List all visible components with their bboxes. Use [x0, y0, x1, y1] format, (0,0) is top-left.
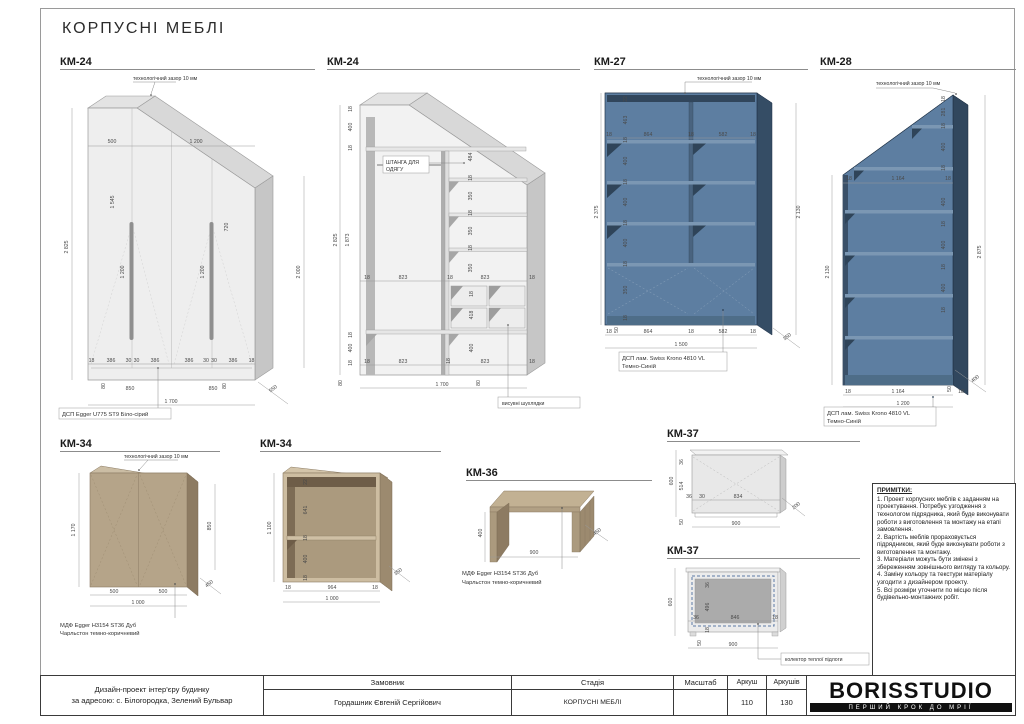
- dim: 550: [268, 384, 279, 394]
- project-cell: Дизайн-проект інтер'єру будинку за адрес…: [41, 676, 263, 715]
- dim: 500: [159, 589, 168, 595]
- leader-label: висувні шухлядки: [502, 401, 545, 407]
- dim: 350: [468, 192, 474, 201]
- dim: 582: [719, 329, 728, 335]
- dim: 2 000: [296, 265, 302, 278]
- stage-cell: Стадія КОРПУСНІ МЕБЛІ: [511, 676, 673, 715]
- dim: 350: [782, 332, 793, 342]
- drawing-code-km24b: КМ-24: [327, 56, 580, 70]
- dim: 850: [207, 522, 213, 531]
- dim: 18: [364, 275, 370, 281]
- notes-box: ПРИМІТКИ: 1. Проект корпусних меблів є з…: [872, 483, 1016, 676]
- leader-label: технологічний зазор 10 мм: [697, 75, 762, 82]
- leader-label: технологічний зазор 10 мм: [876, 80, 941, 87]
- dim: 30: [126, 358, 132, 364]
- dim: 500: [108, 139, 117, 145]
- dim: 1 164: [892, 176, 905, 182]
- dim: 30: [134, 358, 140, 364]
- dim: 500: [110, 589, 119, 595]
- dim: 80: [476, 380, 482, 386]
- material-label: МДФ Egger H3154 ST36 Дуб: [60, 623, 137, 629]
- customer-cell: Замовник Гордашник Євгеній Сергійович: [263, 676, 511, 715]
- dim: 582: [719, 132, 728, 138]
- dim: 18: [529, 359, 535, 365]
- figure-km34a: технологічний зазор 10 мм 1 170 850 450 …: [58, 438, 258, 656]
- sheet-cell: Аркуш 110: [727, 676, 766, 715]
- dim: 386: [185, 358, 194, 364]
- material-label: Чарльстон темно-коричневий: [462, 579, 541, 586]
- drawing-code-km28: КМ-28: [820, 56, 1016, 70]
- dim: 1 200: [190, 139, 203, 145]
- dim: 2 825: [333, 233, 339, 246]
- dim: 18: [688, 132, 694, 138]
- dim: 418: [469, 311, 475, 320]
- dim: 18: [750, 329, 756, 335]
- cabinet-shape: [605, 93, 772, 335]
- dim: 30: [211, 358, 217, 364]
- dim: 964: [328, 585, 337, 591]
- dim: 850: [209, 386, 218, 392]
- dim: 18: [846, 176, 852, 182]
- cabinet-shape: [360, 93, 545, 375]
- sheets-value: 130: [767, 690, 806, 715]
- dim: 50: [697, 640, 703, 646]
- dim: 18: [469, 291, 475, 297]
- dim: 18: [447, 275, 453, 281]
- dim: 18: [772, 615, 778, 621]
- dim: 386: [107, 358, 116, 364]
- note-item: 4. Заміну кольору та текстури матеріалу …: [877, 571, 1011, 586]
- dim: 18: [468, 245, 474, 251]
- dim: 1 170: [71, 523, 77, 536]
- sheet-value: 110: [728, 690, 766, 715]
- dim: 823: [399, 359, 408, 365]
- scale-label: Масштаб: [674, 676, 727, 690]
- dim: 18: [623, 261, 629, 267]
- dim: 18: [945, 176, 951, 182]
- material-label: Темно-Синій: [622, 363, 656, 370]
- brand-logo: BORISSTUDIO: [810, 680, 1012, 702]
- dim: 18: [606, 329, 612, 335]
- cabinet-shape: [283, 467, 392, 591]
- dim: 1 700: [165, 399, 178, 405]
- drawing-sheet: КОРПУСНІ МЕБЛІ КМ-24: [0, 0, 1024, 724]
- logo-cell: BORISSTUDIO ПЕРШИЙ КРОК ДО МРІЇ: [806, 676, 1015, 715]
- dim: 400: [941, 198, 947, 207]
- dim: 200: [791, 501, 802, 511]
- project-line2: за адресою: с. Білогородка, Зелений Буль…: [71, 696, 232, 706]
- dim: 80: [222, 383, 228, 389]
- dim: 30: [699, 494, 705, 500]
- figure-km36: 400 900 450 МДФ Egger H3154 ST36 Дуб Чар…: [460, 465, 655, 600]
- dim: 900: [732, 521, 741, 527]
- dim: 484: [468, 153, 474, 162]
- note-item: 1. Проект корпусних меблів є заданням на…: [877, 496, 1011, 534]
- figure-km28: технологічний зазор 10 мм 18 281 18 400 …: [818, 72, 1016, 457]
- bench-shape: [490, 491, 594, 562]
- dim: 18: [845, 389, 851, 395]
- dim: 1 200: [120, 265, 126, 278]
- dim: 400: [478, 529, 484, 538]
- stage-label: Стадія: [512, 676, 673, 690]
- dim: 18: [372, 585, 378, 591]
- dim: 50: [614, 327, 620, 333]
- dim: 18: [468, 210, 474, 216]
- dim: 386: [151, 358, 160, 364]
- dim: 350: [623, 286, 629, 295]
- dim: 2 130: [796, 205, 802, 218]
- dim: 18: [623, 220, 629, 226]
- dim: 18: [348, 106, 354, 112]
- dim: 18: [303, 575, 309, 581]
- dim: 50: [679, 519, 685, 525]
- dim: 514: [679, 482, 685, 491]
- dim: 400: [623, 157, 629, 166]
- leader-label: ОДЯГУ: [386, 167, 404, 173]
- figure-km37b: 600 36 496 36 846 18 18 50 900 колектор …: [665, 545, 870, 673]
- dim: 463: [623, 116, 629, 125]
- sheets-label: Аркушів: [767, 676, 806, 690]
- dim: 600: [668, 598, 674, 607]
- dim: 36: [686, 494, 692, 500]
- dim: 641: [303, 506, 309, 515]
- dim: 600: [669, 477, 675, 486]
- dim: 22: [623, 96, 629, 102]
- material-label: ДСП лам. Swiss Krono 4810 VL: [622, 356, 706, 362]
- figure-km37a: 600 36 514 50 36 30 834 900 200: [665, 428, 862, 542]
- scale-cell: Масштаб: [673, 676, 727, 715]
- dim: 2 875: [977, 245, 983, 258]
- note-item: 5. Всі розміри уточнити по місцю після б…: [877, 587, 1011, 602]
- notes-heading: ПРИМІТКИ:: [877, 487, 1011, 495]
- dim: 18: [303, 535, 309, 541]
- dim: 400: [970, 374, 981, 384]
- dim: 18: [348, 360, 354, 366]
- dim: 1 545: [110, 195, 116, 208]
- project-line1: Дизайн-проект інтер'єру будинку: [95, 685, 210, 695]
- dim: 400: [469, 344, 475, 353]
- dim: 1 500: [675, 342, 688, 348]
- dim: 1 164: [892, 389, 905, 395]
- material-label: Чарльстон темно-коричневий: [60, 630, 139, 637]
- figure-km34b: 1 100 22 641 18 400 18 18 964 18 1 000 3…: [258, 438, 443, 633]
- dim: 400: [348, 123, 354, 132]
- sheets-cell: Аркушів 130: [766, 676, 806, 715]
- dim: 350: [468, 264, 474, 273]
- dim: 400: [303, 555, 309, 564]
- dim: 18: [941, 123, 947, 129]
- dim: 281: [941, 108, 947, 117]
- dim: 18: [364, 359, 370, 365]
- dim: 36: [679, 459, 685, 465]
- dim: 400: [941, 143, 947, 152]
- figure-km24a: технологічний зазор 10 мм 500 1 200 1 54…: [58, 72, 316, 420]
- dim: 18: [249, 358, 255, 364]
- dim: 18: [941, 264, 947, 270]
- dim: 18: [468, 175, 474, 181]
- dim: 350: [468, 227, 474, 236]
- dim: 18: [941, 307, 947, 313]
- dim: 18: [688, 329, 694, 335]
- dim: 18: [623, 137, 629, 143]
- sheet-label: Аркуш: [728, 676, 766, 690]
- dim: 2 130: [825, 265, 831, 278]
- figure-km24b: 18 400 18 2 825 1 873 484 18 350 18 350 …: [325, 72, 580, 422]
- dim: 18: [958, 389, 964, 395]
- dim: 400: [623, 239, 629, 248]
- dim: 18: [941, 96, 947, 102]
- dim: 18: [941, 221, 947, 227]
- dim: 496: [705, 603, 711, 612]
- material-label: ДСП лам. Swiss Krono 4810 VL: [827, 411, 911, 417]
- dim: 18: [750, 132, 756, 138]
- dim: 18: [348, 145, 354, 151]
- cabinet-shape: [843, 95, 968, 395]
- dim: 1 000: [132, 600, 145, 606]
- dim: 1 200: [897, 401, 910, 407]
- dim: 1 873: [345, 233, 351, 246]
- dim: 864: [644, 329, 653, 335]
- leader-label: ШТАНГА ДЛЯ: [386, 160, 419, 166]
- material-label: Темно-Синій: [827, 418, 861, 425]
- drawing-code-km24a: КМ-24: [60, 56, 315, 70]
- dim: 22: [303, 479, 309, 485]
- customer-name: Гордашник Євгеній Сергійович: [264, 690, 511, 715]
- material-label: МДФ Egger H3154 ST36 Дуб: [462, 571, 539, 577]
- note-item: 3. Матеріали можуть бути змінені з збере…: [877, 556, 1011, 571]
- dim: 400: [623, 198, 629, 207]
- dim: 18: [89, 358, 95, 364]
- material-label: ДСП Egger U775 ST9 Біло-сірий: [62, 411, 148, 418]
- dim: 400: [941, 241, 947, 250]
- page-title: КОРПУСНІ МЕБЛІ: [62, 20, 225, 38]
- dim: 864: [644, 132, 653, 138]
- dim: 80: [101, 383, 107, 389]
- dim: 36: [705, 582, 711, 588]
- customer-label: Замовник: [264, 676, 511, 690]
- dim: 18: [623, 179, 629, 185]
- dim: 1 200: [200, 265, 206, 278]
- dim: 386: [229, 358, 238, 364]
- dim: 18: [529, 275, 535, 281]
- dim: 18: [446, 358, 452, 364]
- dim: 823: [399, 275, 408, 281]
- dim: 18: [623, 315, 629, 321]
- dim: 850: [126, 386, 135, 392]
- dim: 823: [481, 275, 490, 281]
- dim: 18: [606, 132, 612, 138]
- cabinet-shape: [686, 568, 786, 636]
- title-block: Дизайн-проект інтер'єру будинку за адрес…: [40, 675, 1016, 716]
- dim: 18: [285, 585, 291, 591]
- note-item: 2. Вартість меблів прораховується підряд…: [877, 534, 1011, 557]
- dim: 2 375: [594, 205, 600, 218]
- dim: 50: [947, 386, 953, 392]
- leader-label: технологічний зазор 10 мм: [133, 75, 198, 82]
- dim: 1 100: [267, 521, 273, 534]
- dim: 80: [338, 380, 344, 386]
- dim: 900: [530, 550, 539, 556]
- dim: 400: [941, 284, 947, 293]
- dim: 834: [734, 494, 743, 500]
- dim: 18: [348, 332, 354, 338]
- dim: 823: [481, 359, 490, 365]
- leader-label: технологічний зазор 10 мм: [124, 453, 189, 460]
- dim: 36: [693, 615, 699, 621]
- dim: 30: [203, 358, 209, 364]
- scale-value: [674, 690, 727, 715]
- dim: 900: [729, 642, 738, 648]
- leader-label: колектор теплої підлоги: [785, 657, 843, 663]
- dim: 720: [224, 223, 230, 232]
- dim: 1 000: [326, 596, 339, 602]
- brand-tagline: ПЕРШИЙ КРОК ДО МРІЇ: [810, 703, 1012, 712]
- cabinet-shape: [690, 450, 788, 517]
- dim: 400: [348, 344, 354, 353]
- dim: 18: [941, 165, 947, 171]
- dim: 18: [705, 627, 711, 633]
- dim: 2 825: [64, 240, 70, 253]
- drawing-code-km27: КМ-27: [594, 56, 808, 70]
- stage-value: КОРПУСНІ МЕБЛІ: [512, 690, 673, 715]
- figure-km27: технологічний зазор 10 мм 2 375 22 463 1…: [592, 72, 808, 407]
- cabinet-shape: [90, 466, 198, 596]
- dim: 846: [731, 615, 740, 621]
- dim: 1 700: [436, 382, 449, 388]
